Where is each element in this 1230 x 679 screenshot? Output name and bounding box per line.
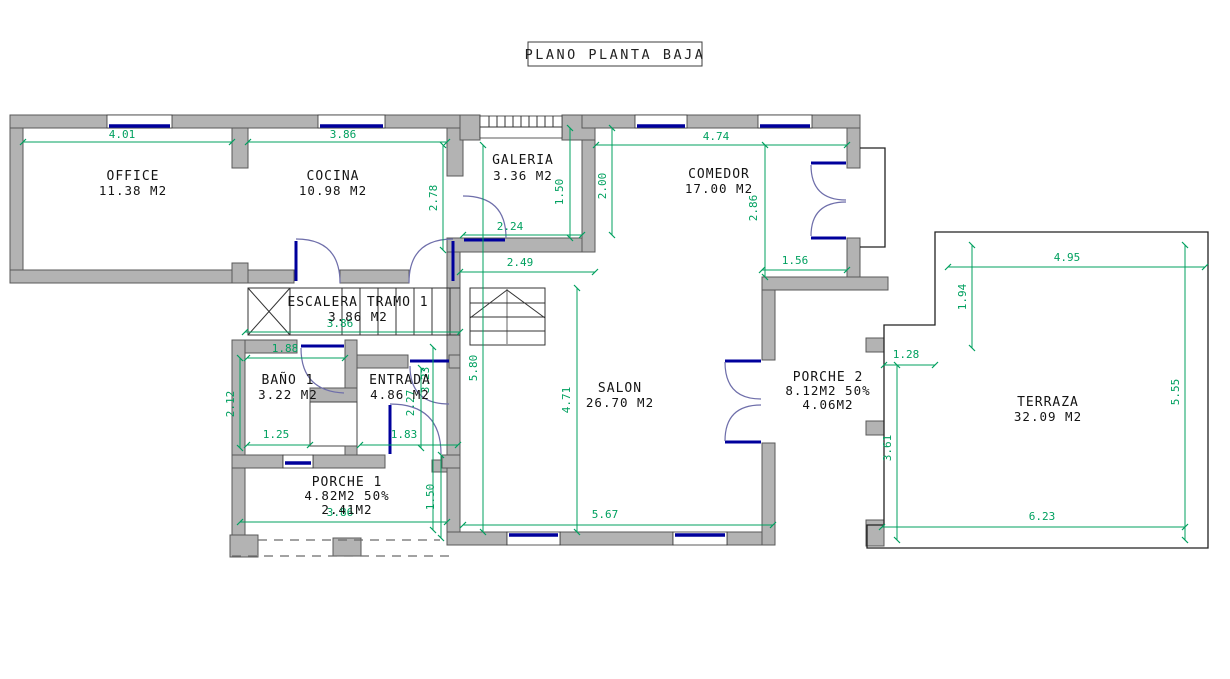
dim-office-width: 4.01 [109, 128, 136, 141]
room-label-porche1-area: 4.82M2 50% [304, 488, 389, 503]
dim-entrada-door-width: 1.83 [391, 428, 418, 441]
room-label-office-area: 11.38 M2 [99, 183, 167, 198]
dim-comedor-right-height: 2.86 [747, 195, 760, 222]
room-label-porche2-area: 8.12M2 50% [785, 383, 870, 398]
room-label-escalera-area: 3.86 M2 [328, 309, 388, 324]
dim-comedor-width: 4.74 [703, 130, 730, 143]
room-label-entrada-area: 4.86 M2 [370, 387, 430, 402]
room-label-terraza-area: 32.09 M2 [1014, 409, 1082, 424]
plan-title: PLANO PLANTA BAJA [525, 47, 706, 63]
title-block: PLANO PLANTA BAJA [525, 42, 706, 66]
room-label-porche1-area2: 2.41M2 [321, 502, 372, 517]
dim-porche2-step-width: 1.28 [893, 348, 920, 361]
dim-galeria-height: 1.50 [553, 179, 566, 206]
dim-galeria-door-width: 2.24 [497, 220, 524, 233]
dim-comedor-door-width: 1.56 [782, 254, 809, 267]
room-label-salon-area: 26.70 M2 [586, 395, 654, 410]
dimension-lines [23, 128, 1205, 540]
dim-terraza-right-height: 5.55 [1169, 379, 1182, 406]
stairs-salon [470, 288, 545, 345]
floorplan-drawing: PLANO PLANTA BAJA [0, 0, 1230, 679]
room-label-salon-name: SALON [598, 381, 642, 396]
dim-hall-width: 2.49 [507, 256, 534, 269]
room-label-comedor-name: COMEDOR [688, 167, 750, 182]
floorplan-page: PLANO PLANTA BAJA [0, 0, 1230, 679]
room-label-comedor-area: 17.00 M2 [685, 181, 753, 196]
dim-porche1-height: 1.50 [424, 484, 437, 511]
room-label-porche2-area2: 4.06M2 [802, 397, 853, 412]
room-label-cocina-area: 10.98 M2 [299, 183, 367, 198]
room-label-office-name: OFFICE [107, 169, 160, 184]
dim-comedor-left-height: 2.00 [596, 173, 609, 200]
room-label-entrada-name: ENTRADA [369, 373, 431, 388]
room-label-bano-name: BAÑO 1 [262, 372, 315, 388]
dim-salon-height: 4.71 [560, 387, 573, 414]
dim-terraza-bottom-width: 6.23 [1029, 510, 1056, 523]
room-label-escalera-name: ESCALERA TRAMO 1 [287, 295, 428, 310]
room-label-galeria-area: 3.36 M2 [493, 168, 553, 183]
galeria-louver-window [480, 116, 562, 138]
dim-bano-left-height: 2.12 [224, 391, 237, 418]
dim-salon-left-height: 5.80 [467, 355, 480, 382]
dim-bano-bottom-width: 1.25 [263, 428, 290, 441]
room-label-bano-area: 3.22 M2 [258, 387, 318, 402]
dim-bano-top-width: 1.88 [272, 342, 299, 355]
dim-cocina-width: 3.86 [330, 128, 357, 141]
dim-porche2-height: 3.61 [881, 435, 894, 462]
room-label-galeria-name: GALERIA [492, 153, 554, 168]
room-label-cocina-name: COCINA [307, 169, 360, 184]
dim-terraza-step-height: 1.94 [956, 283, 969, 310]
dim-salon-width: 5.67 [592, 508, 619, 521]
room-label-terraza-name: TERRAZA [1017, 395, 1079, 410]
dim-terraza-top-width: 4.95 [1054, 251, 1081, 264]
dim-cocina-right-height: 2.78 [427, 185, 440, 212]
